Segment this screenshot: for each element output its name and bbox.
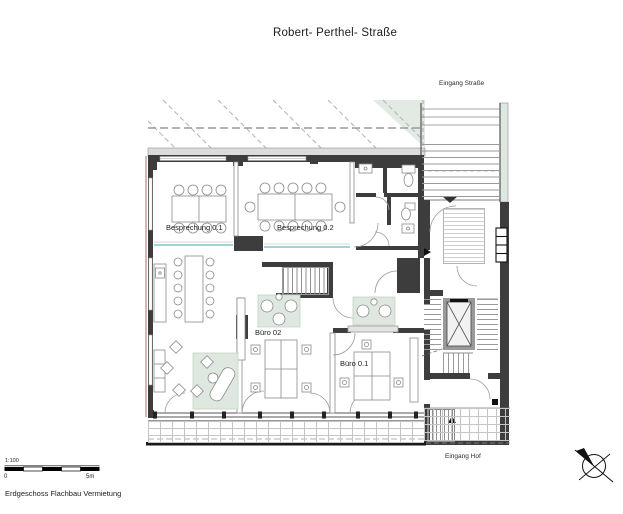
office-02-furniture xyxy=(251,294,311,398)
canopy-roof-projection xyxy=(148,100,425,148)
stairwell-flight-bottom xyxy=(443,353,473,373)
north-arrow-icon xyxy=(573,444,617,486)
central-stair-steps xyxy=(282,267,329,295)
room-label-besprechung-02: Besprechung 0.2 xyxy=(277,224,334,232)
stairwell-flight-left xyxy=(424,299,441,351)
sheet-title: Robert- Perthel- Straße xyxy=(273,28,397,40)
room-label-buero-02: Büro 02 xyxy=(255,329,281,337)
room-label-buero-01: Büro 0.1 xyxy=(340,360,368,368)
elevator xyxy=(443,298,475,350)
scale-bar xyxy=(4,465,104,473)
sheet-caption: Erdgeschoss Flachbau Vermietung xyxy=(5,490,121,498)
kitchen-area xyxy=(154,256,214,322)
label-eingang-hof: Eingang Hof xyxy=(445,454,481,461)
scale-max: 5m xyxy=(86,474,94,480)
scale-zero: 0 xyxy=(4,474,7,480)
lounge-area xyxy=(154,341,238,409)
terrace-paving-grid xyxy=(148,420,424,443)
entrance-hall-hatch xyxy=(443,208,485,264)
label-eingang-strasse: Eingang Straße xyxy=(439,81,484,88)
room-label-besprechung-01: Besprechung 0.1 xyxy=(166,224,223,232)
eave-strip xyxy=(148,148,425,156)
office-01-furniture xyxy=(340,297,403,400)
courtyard-paving-grid xyxy=(424,408,510,441)
scale-ratio: 1:100 xyxy=(5,459,19,465)
stairwell-flight-right xyxy=(477,299,498,351)
street-stairs-steps xyxy=(422,144,500,200)
drawing-sheet: Robert- Perthel- Straße Eingang Straße E… xyxy=(0,0,623,514)
